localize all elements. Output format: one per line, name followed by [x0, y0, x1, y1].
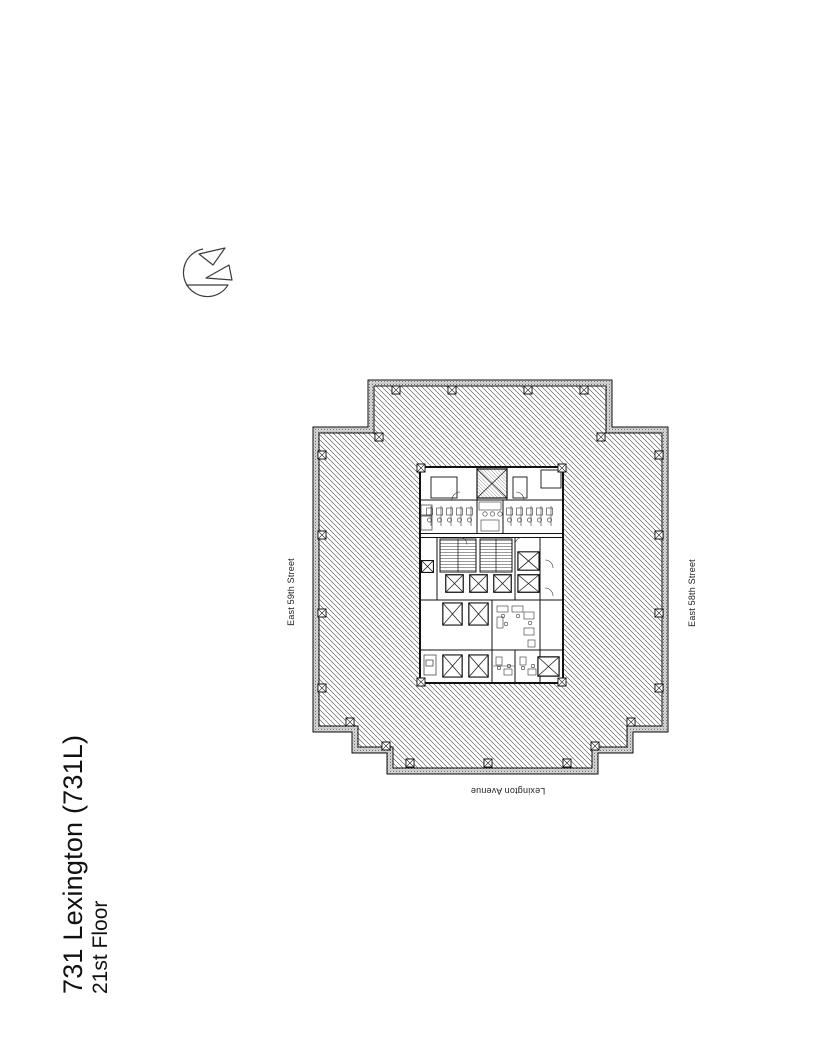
- column: [558, 464, 566, 472]
- column: [484, 759, 492, 767]
- elevator-shaft: [518, 575, 539, 592]
- elevator-shaft: [470, 575, 487, 592]
- column: [448, 386, 456, 394]
- stair-shaft: [480, 539, 512, 572]
- column: [318, 451, 326, 459]
- column: [591, 742, 599, 750]
- column: [382, 742, 390, 750]
- column: [318, 531, 326, 539]
- column: [524, 386, 532, 394]
- column: [655, 609, 663, 617]
- column: [655, 684, 663, 692]
- column: [318, 609, 326, 617]
- column: [417, 464, 425, 472]
- elevator-shaft: [443, 603, 462, 625]
- column: [563, 759, 571, 767]
- column: [346, 718, 354, 726]
- elevator-shaft: [422, 561, 434, 573]
- drawing-sheet: 731 Lexington (731L) 21st Floor East 59t…: [0, 0, 815, 1056]
- north-arrow-icon: [168, 232, 246, 310]
- core: [420, 467, 563, 683]
- mechanical-shaft: [477, 469, 507, 498]
- elevator-shaft: [446, 575, 463, 592]
- drawing-title: 731 Lexington (731L): [58, 735, 89, 994]
- column: [597, 433, 605, 441]
- column: [406, 759, 414, 767]
- elevator-shaft: [538, 657, 559, 676]
- elevator-shaft: [469, 655, 488, 677]
- stair-shaft: [440, 539, 476, 572]
- floor-plan: [280, 360, 700, 800]
- column: [627, 718, 635, 726]
- column: [375, 433, 383, 441]
- title-block: 731 Lexington (731L) 21st Floor: [58, 735, 114, 994]
- column: [558, 678, 566, 686]
- north-arrow-wedge-upper: [199, 248, 225, 265]
- elevator-shaft: [469, 603, 488, 625]
- column: [417, 678, 425, 686]
- column: [392, 386, 400, 394]
- column: [318, 684, 326, 692]
- column: [580, 386, 588, 394]
- elevator-shaft: [443, 655, 462, 677]
- column: [655, 451, 663, 459]
- elevator-shaft: [518, 552, 539, 570]
- north-arrow-wedge-lower: [206, 265, 232, 280]
- column: [655, 531, 663, 539]
- elevator-shaft: [494, 575, 511, 592]
- drawing-subtitle: 21st Floor: [89, 735, 113, 994]
